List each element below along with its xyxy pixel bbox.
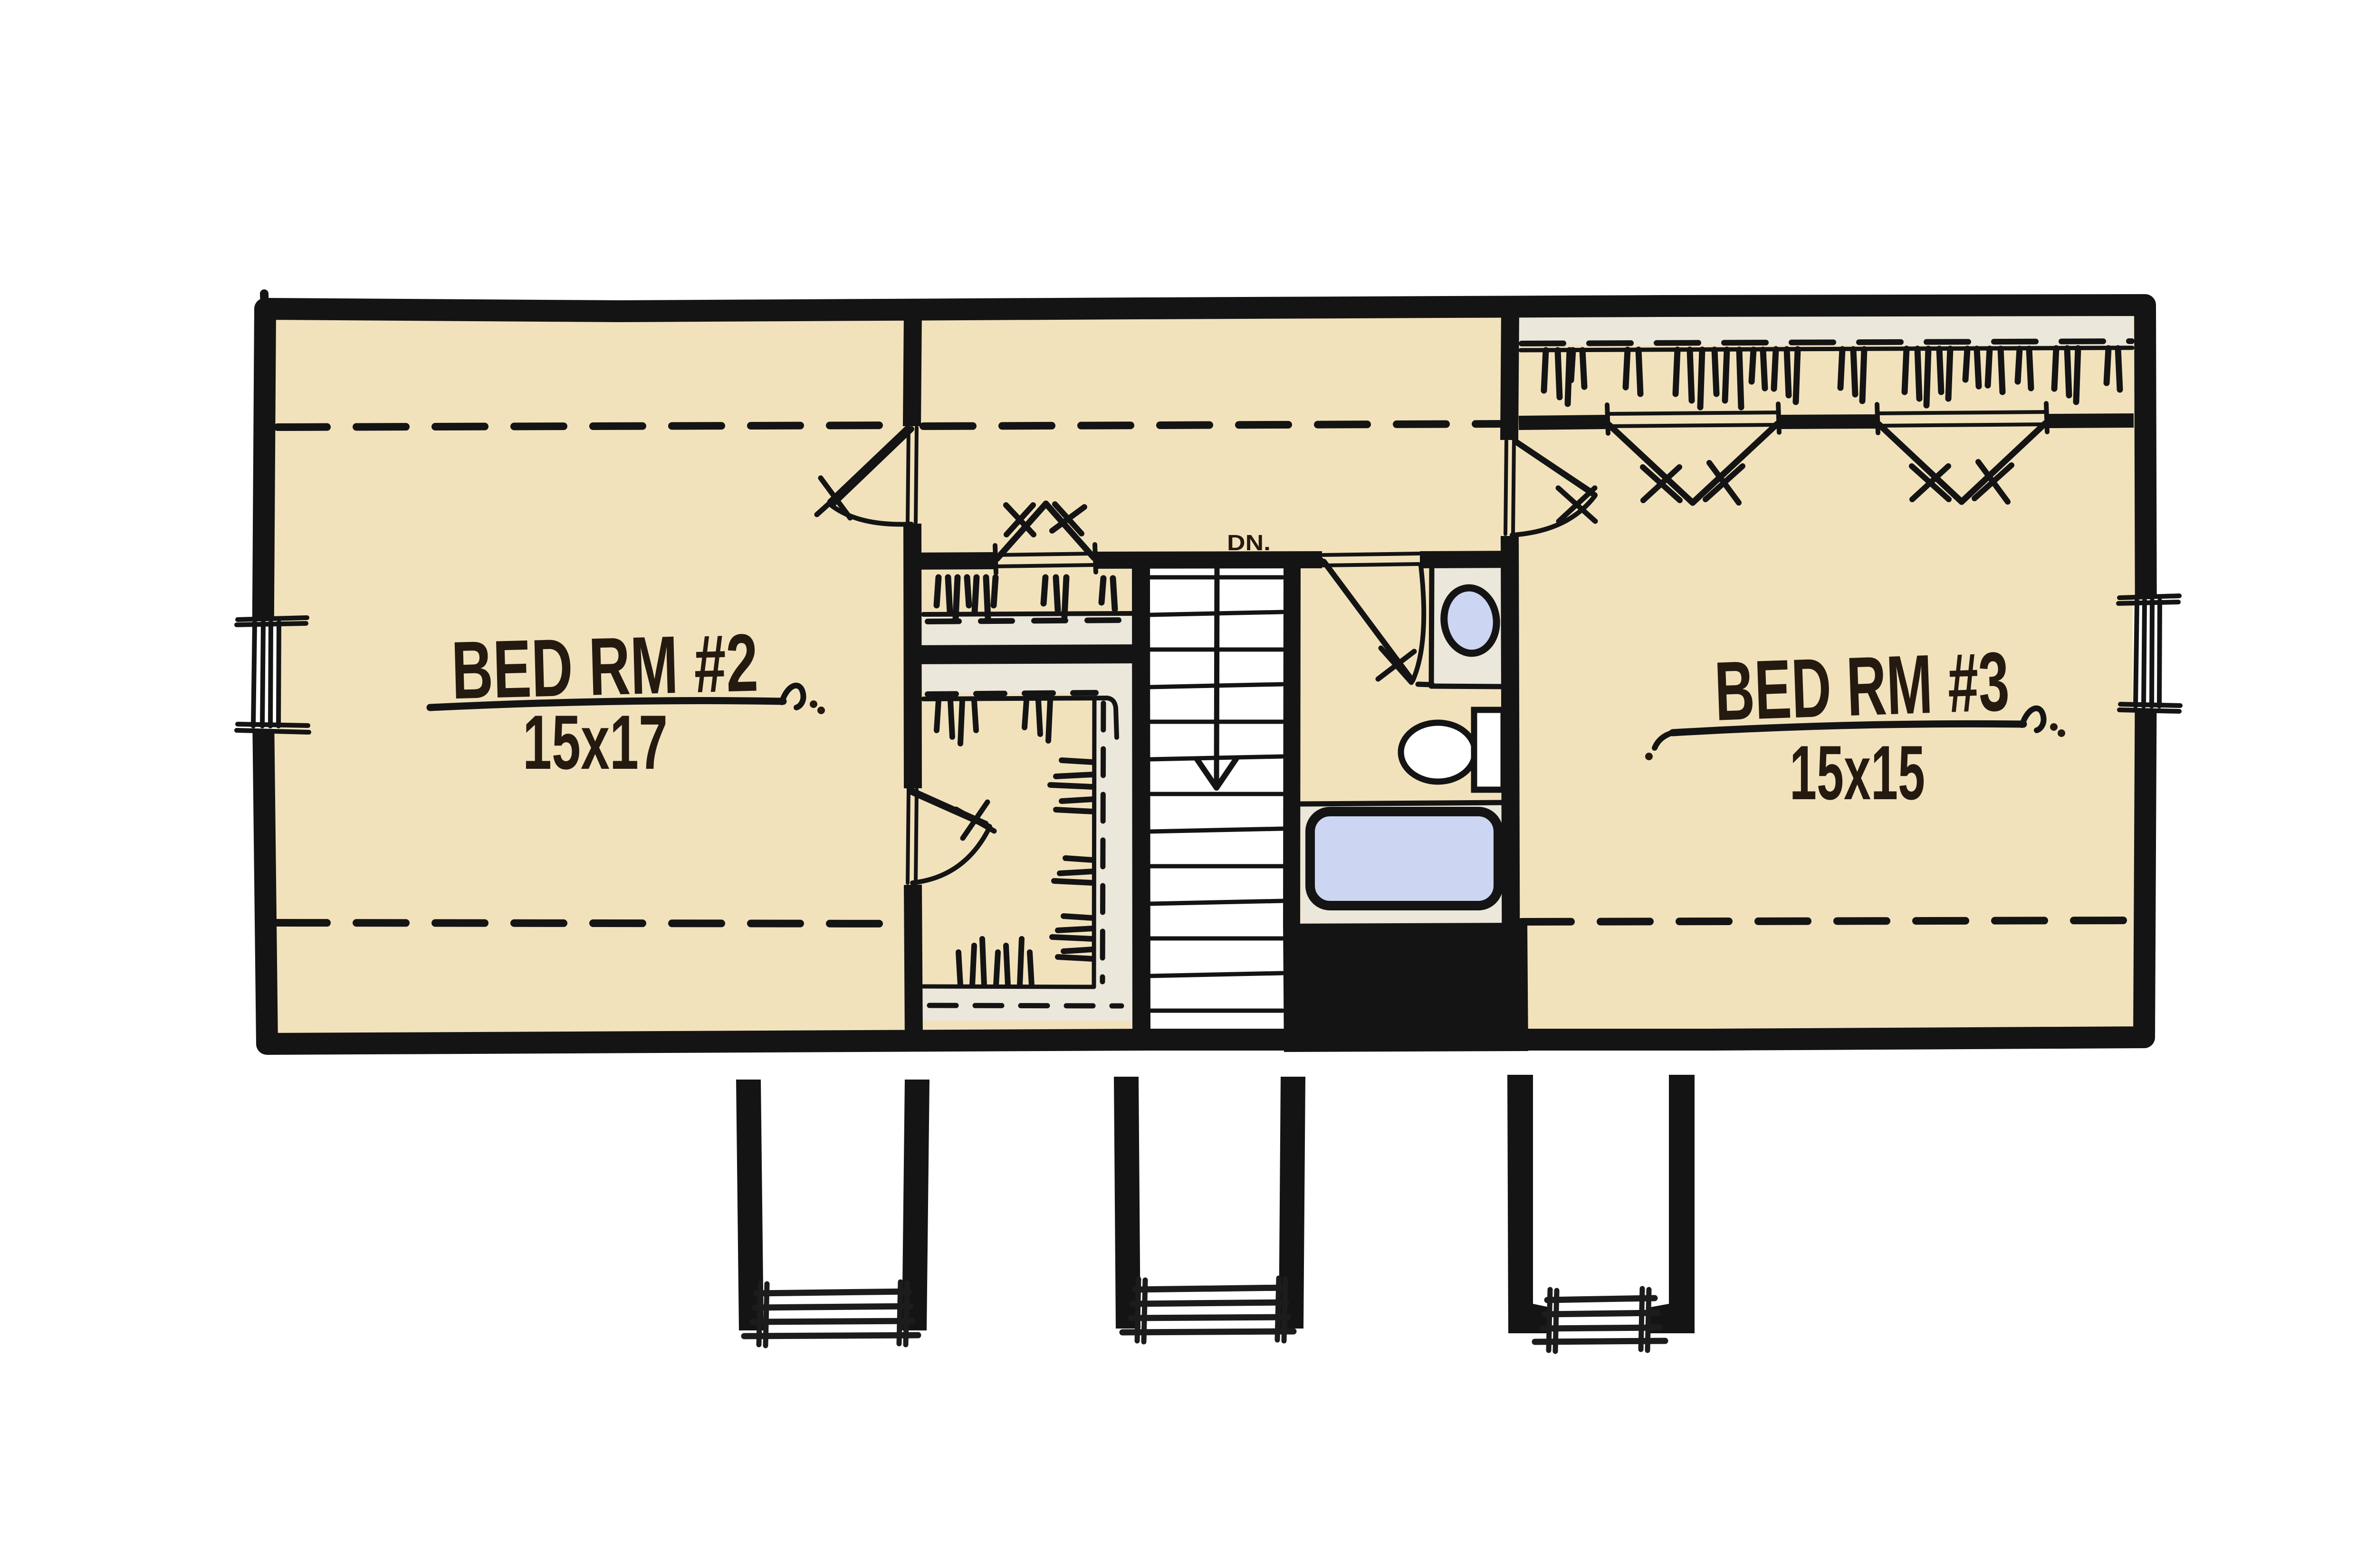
svg-text:15x17: 15x17	[523, 699, 668, 785]
svg-text:15x15: 15x15	[1790, 730, 1925, 816]
svg-text:DN.: DN.	[1227, 530, 1271, 555]
